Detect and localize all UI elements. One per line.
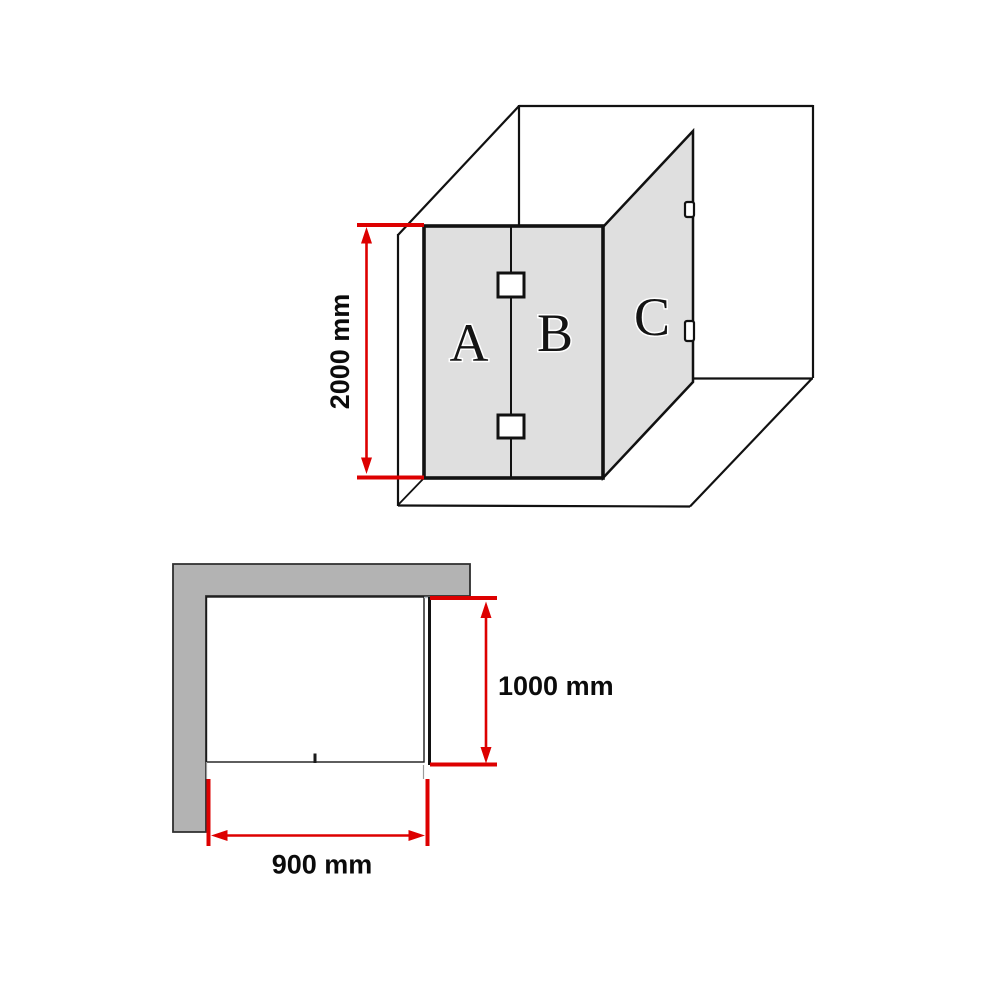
height-dim-arrow-up [361, 227, 372, 244]
floor-front-edge [398, 506, 690, 507]
width-dimension [209, 779, 428, 846]
left-wall-top-diagonal [398, 106, 519, 235]
width-dim-arrow-right [409, 830, 426, 841]
depth-dimension [430, 598, 497, 765]
height-dimension-label: 2000 mm [325, 294, 355, 410]
shower-screen-dimension-diagram: A B C 2000 mm 1000 mm 900 mm [0, 0, 1000, 1000]
plan-view [173, 564, 470, 832]
panel-c-label: C [634, 287, 670, 347]
depth-dim-arrow-down [481, 747, 492, 764]
depth-dimension-label: 1000 mm [498, 671, 614, 701]
panel-a-label: A [450, 313, 489, 373]
hinge-top [498, 273, 524, 297]
width-dimension-label: 900 mm [272, 850, 373, 880]
panel-b-label: B [537, 303, 573, 363]
floor-left-diagonal [398, 478, 424, 505]
width-dim-arrow-left [211, 830, 228, 841]
diagram-canvas: A B C 2000 mm 1000 mm 900 mm [0, 0, 1000, 1000]
hinge-bottom [498, 415, 524, 438]
height-dimension [357, 225, 424, 478]
wall-bracket-top [685, 202, 694, 217]
height-dim-arrow-down [361, 458, 372, 475]
floor-right-diagonal [690, 379, 812, 507]
plan-shower-tray [207, 597, 425, 762]
plan-panel-joint-tick [314, 754, 317, 764]
wall-bracket-bottom [685, 321, 694, 341]
depth-dim-arrow-up [481, 602, 492, 619]
